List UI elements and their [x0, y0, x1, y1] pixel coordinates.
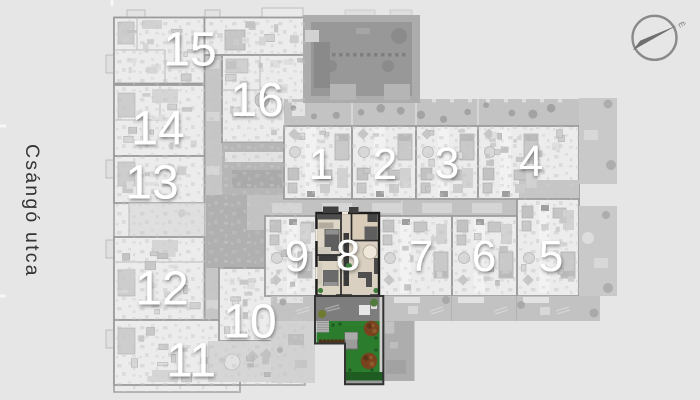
svg-text:15: 15 — [163, 24, 216, 77]
svg-text:2: 2 — [373, 140, 397, 189]
svg-text:3: 3 — [435, 139, 459, 188]
svg-text:1: 1 — [309, 140, 333, 189]
svg-text:13: 13 — [125, 157, 178, 210]
svg-text:Csángó utca: Csángó utca — [21, 144, 43, 278]
svg-text:8: 8 — [336, 231, 360, 280]
svg-text:7: 7 — [409, 232, 433, 281]
svg-text:9: 9 — [285, 232, 309, 281]
svg-text:14: 14 — [131, 103, 184, 156]
svg-text:16: 16 — [230, 74, 283, 127]
svg-text:12: 12 — [135, 263, 188, 316]
svg-text:4: 4 — [519, 137, 543, 186]
svg-text:6: 6 — [472, 232, 496, 281]
svg-text:5: 5 — [539, 232, 563, 281]
svg-text:10: 10 — [223, 296, 276, 349]
svg-text:11: 11 — [166, 335, 216, 388]
